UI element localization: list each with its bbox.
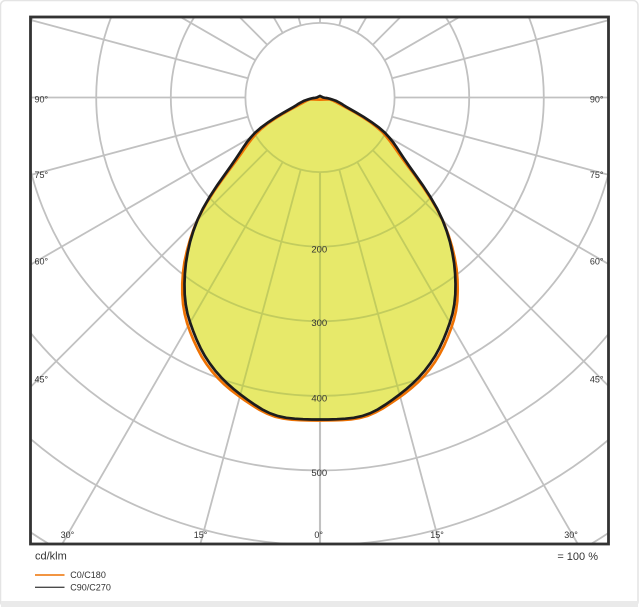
svg-text:45°: 45° xyxy=(35,375,49,385)
svg-text:C0/C180: C0/C180 xyxy=(70,570,106,580)
svg-text:15°: 15° xyxy=(194,530,208,540)
svg-text:30°: 30° xyxy=(61,530,75,540)
svg-text:90°: 90° xyxy=(590,95,604,105)
svg-text:90°: 90° xyxy=(35,95,49,105)
svg-text:= 100 %: = 100 % xyxy=(557,551,598,563)
svg-text:60°: 60° xyxy=(35,257,49,267)
svg-text:45°: 45° xyxy=(590,375,604,385)
svg-text:400: 400 xyxy=(311,394,327,405)
svg-text:cd/klm: cd/klm xyxy=(35,551,67,563)
svg-text:60°: 60° xyxy=(590,257,604,267)
svg-text:300: 300 xyxy=(311,318,327,329)
svg-text:75°: 75° xyxy=(35,170,49,180)
svg-text:30°: 30° xyxy=(564,530,578,540)
svg-text:200: 200 xyxy=(311,244,327,255)
svg-text:C90/C270: C90/C270 xyxy=(70,583,111,593)
svg-text:0°: 0° xyxy=(314,530,323,540)
svg-text:500: 500 xyxy=(311,468,327,479)
svg-text:75°: 75° xyxy=(590,170,604,180)
svg-text:15°: 15° xyxy=(430,530,444,540)
